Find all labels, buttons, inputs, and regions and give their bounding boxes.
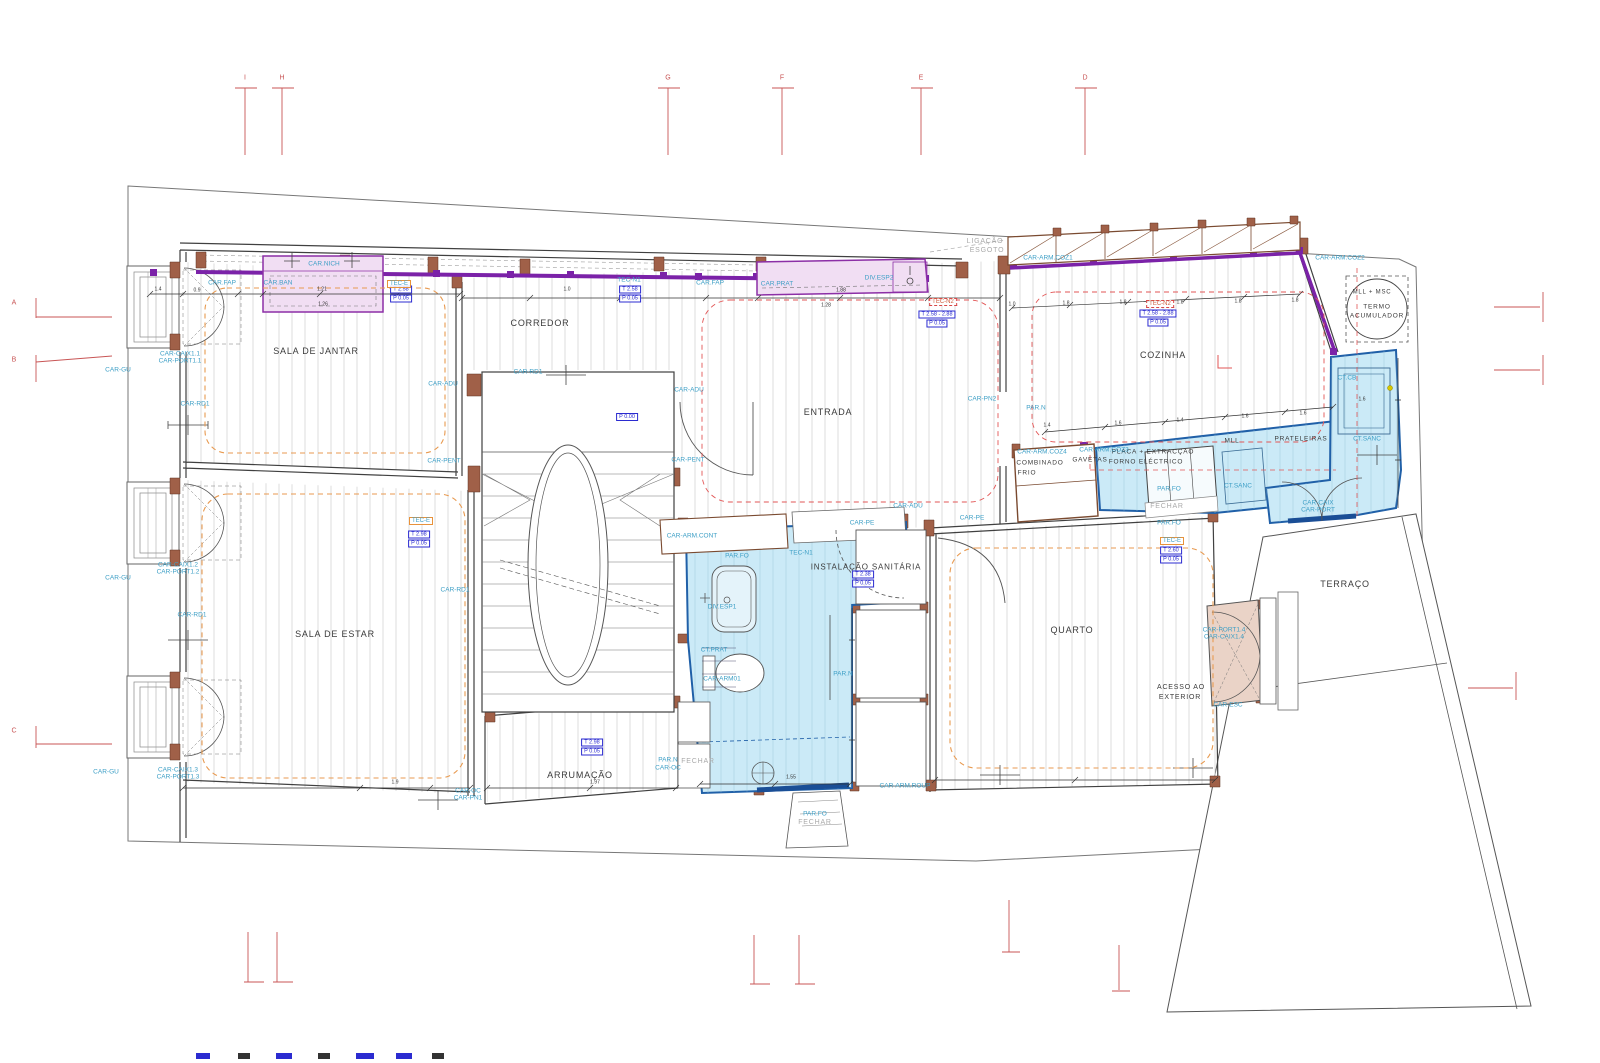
room-label-acumulador: ACUMULADOR bbox=[1350, 312, 1404, 319]
tec-box-tec-n2-3: TEC-N2 bbox=[929, 298, 957, 306]
tag-label-car-port: CAR-PORT bbox=[1301, 506, 1335, 513]
tag-label-par-fo: PAR.FO bbox=[725, 552, 749, 559]
grid-marker-left-c: C bbox=[11, 728, 16, 735]
tag-label-car-pn1: CAR-PN1 bbox=[454, 794, 483, 801]
room-label-prateleiras: PRATELEIRAS bbox=[1274, 435, 1327, 442]
tec-box-tec-n2-4: TEC-N2 bbox=[1146, 300, 1174, 308]
level-box-line: P 0.05 bbox=[408, 540, 430, 548]
tag-label-car-pe: CAR-PE bbox=[960, 514, 985, 521]
dim-label-3: 1.26 bbox=[318, 302, 328, 308]
level-box-0: T 2.58P 0.05 bbox=[390, 286, 412, 303]
labels-layer: SALA DE JANTARCORREDORENTRADACOZINHASALA… bbox=[0, 0, 1600, 1063]
tag-label-par-n: PAR.N bbox=[1026, 404, 1045, 411]
grid-marker-top-h: H bbox=[279, 75, 284, 82]
level-box-line: T 2.98 bbox=[581, 739, 603, 747]
tag-label-car-pent: CAR-PENT bbox=[671, 456, 704, 463]
grid-marker-left-b: B bbox=[12, 357, 17, 364]
tag-label-par-n: PAR.N bbox=[833, 670, 852, 677]
level-box-line: P 0.05 bbox=[852, 580, 874, 588]
room-label-sala-de-jantar: SALA DE JANTAR bbox=[273, 347, 359, 357]
level-box-line: P 0.05 bbox=[1147, 319, 1169, 327]
grid-marker-left-a: A bbox=[12, 300, 17, 307]
level-box-3: T 2.58 - 2.88P 0.05 bbox=[1139, 310, 1176, 327]
dim-label-6: 1.28 bbox=[821, 303, 831, 309]
dim-label-8: 1.8 bbox=[1063, 301, 1070, 307]
dim-label-20: 1.55 bbox=[786, 775, 796, 781]
dim-label-15: 1.4 bbox=[1177, 418, 1184, 424]
level-box-2: T 2.58 - 2.88P 0.05 bbox=[918, 311, 955, 328]
room-label-quarto: QUARTO bbox=[1051, 626, 1094, 636]
room-label-frio: FRIO bbox=[1018, 469, 1037, 476]
tag-label-car-pent: CAR-PENT bbox=[427, 457, 460, 464]
tag-label-car-nich: CAR.NICH bbox=[308, 260, 339, 267]
level-box-6: T 2.98P 0.05 bbox=[581, 739, 603, 756]
tag-label-car-caix1-4: CAR-CAIX1.4 bbox=[1204, 633, 1244, 640]
tag-label-div-esp1: DIV.ESP1 bbox=[708, 603, 737, 610]
dim-label-9: 1.8 bbox=[1120, 300, 1127, 306]
level-box-5: T 2.98P 0.05 bbox=[408, 531, 430, 548]
note-label-esgoto: ESGOTO bbox=[970, 247, 1005, 255]
room-label-entrada: ENTRADA bbox=[804, 408, 853, 418]
tag-label-tec-n1: TEC-N1 bbox=[617, 276, 640, 283]
grid-marker-top-g: G bbox=[665, 75, 670, 82]
level-box-line: P 0.05 bbox=[1160, 556, 1182, 564]
tec-box-tec-e-1: TEC-E bbox=[409, 517, 433, 525]
dim-label-14: 1.6 bbox=[1115, 421, 1122, 427]
tag-label-car-rd1: CAR-RD1 bbox=[181, 400, 210, 407]
grid-marker-top-e: E bbox=[919, 75, 924, 82]
tag-label-car-gu: CAR-GU bbox=[105, 574, 131, 581]
tag-label-car-rd1: CAR-RD1 bbox=[178, 611, 207, 618]
tag-label-car-arm-coz1: CAR-ARM.COZ1 bbox=[1023, 254, 1072, 261]
level-box-4: T 2.38P 0.05 bbox=[852, 571, 874, 588]
dim-label-1: 0.9 bbox=[194, 288, 201, 294]
grid-marker-top-i: I bbox=[244, 75, 246, 82]
level-box-line: P 0.05 bbox=[390, 295, 412, 303]
room-label-acesso-ao: ACESSO AO bbox=[1157, 684, 1205, 692]
room-label-arruma-o: ARRUMAÇÃO bbox=[547, 771, 613, 781]
level-box-line: P 0.05 bbox=[926, 320, 948, 328]
note-label-fechar: FECHAR bbox=[1150, 503, 1184, 511]
floor-plan-canvas: SALA DE JANTARCORREDORENTRADACOZINHASALA… bbox=[0, 0, 1600, 1063]
tag-label-car-esc: CAR-ESC bbox=[1213, 701, 1242, 708]
level-box-7: T 2.60P 0.05 bbox=[1160, 547, 1182, 564]
dim-label-16: 1.6 bbox=[1242, 414, 1249, 420]
dim-label-17: 1.6 bbox=[1300, 411, 1307, 417]
room-label-termo: TERMO bbox=[1363, 303, 1390, 310]
tag-label-par-fo: PAR.FO bbox=[1157, 485, 1181, 492]
tag-label-ct-sanc: CT.SANC bbox=[1353, 435, 1381, 442]
dim-label-5: 1.88 bbox=[836, 288, 846, 294]
level-box-line: T 2.58 - 2.88 bbox=[1139, 310, 1176, 318]
tag-label-car-arm-coz4: CAR-ARM.COZ4 bbox=[1017, 448, 1066, 455]
dim-label-4: 1.0 bbox=[564, 287, 571, 293]
tag-label-div-esp2: DIV.ESP2 bbox=[865, 274, 894, 281]
room-label-forno-el-ctrico: FORNO ELÉCTRICO bbox=[1109, 458, 1183, 465]
level-box-line: T 2.98 bbox=[408, 531, 430, 539]
level-box-8: P 0.00 bbox=[616, 413, 638, 421]
tag-label-car-gu: CAR-GU bbox=[93, 768, 119, 775]
room-label-combinado: COMBINADO bbox=[1016, 459, 1063, 466]
level-box-line: P 0.05 bbox=[581, 748, 603, 756]
level-box-line: P 0.00 bbox=[616, 413, 638, 421]
tag-label-car-rd1: CAR-RD1 bbox=[441, 586, 470, 593]
room-label-exterior: EXTERIOR bbox=[1159, 694, 1201, 702]
tag-label-car-arm-roup: CAR-ARM.ROUP bbox=[880, 782, 931, 789]
room-label-gavetas: GAVETAS bbox=[1072, 456, 1107, 463]
note-label-fechar: FECHAR bbox=[798, 819, 832, 827]
tag-label-car-pn2: CAR-PN2 bbox=[968, 395, 997, 402]
tag-label-car-adu: CAR-ADU bbox=[428, 380, 458, 387]
tag-label-car-fap: CAR.FAP bbox=[208, 279, 236, 286]
tag-label-car-fap: CAR.FAP bbox=[696, 279, 724, 286]
tag-label-ct-sanc: CT.SANC bbox=[1224, 482, 1252, 489]
tag-label-ct-cb: CT.CB bbox=[1338, 374, 1357, 381]
note-label-fechar: FECHAR bbox=[681, 758, 715, 766]
room-label-sala-de-estar: SALA DE ESTAR bbox=[295, 630, 375, 640]
room-label-mll: MLL bbox=[1224, 437, 1239, 444]
tag-label-car-rd1: CAR-RD1 bbox=[514, 368, 543, 375]
tag-label-par-n: PAR.N bbox=[658, 756, 677, 763]
dim-label-7: 1.0 bbox=[1009, 302, 1016, 308]
tag-label-car-oc: CAR-OC bbox=[655, 764, 681, 771]
tag-label-tec-n1: TEC-N1 bbox=[789, 549, 812, 556]
tag-label-car-prat: CAR.PRAT bbox=[761, 280, 793, 287]
tag-label-par-fo: PAR.FO bbox=[1157, 519, 1181, 526]
level-box-line: P 0.05 bbox=[619, 295, 641, 303]
dim-label-13: 1.4 bbox=[1044, 423, 1051, 429]
tag-label-ct-prat: CT.PRAT bbox=[701, 646, 728, 653]
tec-box-tec-e-2: TEC-E bbox=[1160, 537, 1184, 545]
dim-label-21: 1.6 bbox=[1359, 397, 1366, 403]
room-label-mll-msc: MLL + MSC bbox=[1353, 290, 1392, 297]
tag-label-car-gu: CAR-GU bbox=[105, 366, 131, 373]
tag-label-car-adu: CAR-ADU bbox=[674, 386, 704, 393]
tag-label-car-arm-cont: CAR-ARM.CONT bbox=[667, 532, 718, 539]
tag-label-car-arm01: CAR-ARM01 bbox=[703, 675, 741, 682]
dim-label-11: 1.8 bbox=[1235, 299, 1242, 305]
tag-label-car-port1-3: CAR-PORT1.3 bbox=[157, 773, 200, 780]
grid-marker-top-f: F bbox=[780, 75, 784, 82]
tag-label-car-adu: CAR-ADU bbox=[893, 502, 923, 509]
room-label-cozinha: COZINHA bbox=[1140, 351, 1186, 361]
room-label-terra-o: TERRAÇO bbox=[1320, 580, 1370, 590]
tag-label-car-port1-1: CAR-PORT1.1 bbox=[159, 357, 202, 364]
note-label-liga-o: LIGAÇÃO bbox=[967, 238, 1004, 246]
tag-label-par-fo: PAR.FO bbox=[803, 810, 827, 817]
dim-label-19: 1.97 bbox=[590, 780, 600, 786]
tag-label-car-port1-2: CAR-PORT1.2 bbox=[157, 568, 200, 575]
tag-label-car-arm-coz3: CAR-ARM.COZ3 bbox=[1079, 446, 1128, 453]
level-box-1: T 2.58P 0.05 bbox=[619, 286, 641, 303]
level-box-line: T 2.58 - 2.88 bbox=[918, 311, 955, 319]
level-box-line: T 2.60 bbox=[1160, 547, 1182, 555]
tec-box-tec-e-0: TEC-E bbox=[387, 280, 411, 288]
level-box-line: T 2.58 bbox=[619, 286, 641, 294]
grid-marker-top-d: D bbox=[1082, 75, 1087, 82]
dim-label-0: 1.4 bbox=[155, 287, 162, 293]
tag-label-car-arm-coz2: CAR-ARM.COZ2 bbox=[1315, 254, 1364, 261]
room-label-corredor: CORREDOR bbox=[511, 319, 570, 329]
tag-label-car-pe: CAR-PE bbox=[850, 519, 875, 526]
dim-label-12: 1.8 bbox=[1292, 298, 1299, 304]
level-box-line: T 2.38 bbox=[852, 571, 874, 579]
tag-label-car-ban: CAR.BAN bbox=[264, 279, 293, 286]
dim-label-2: 1.21 bbox=[317, 287, 327, 293]
dim-label-18: 1.9 bbox=[392, 780, 399, 786]
dim-label-10: 1.8 bbox=[1177, 300, 1184, 306]
